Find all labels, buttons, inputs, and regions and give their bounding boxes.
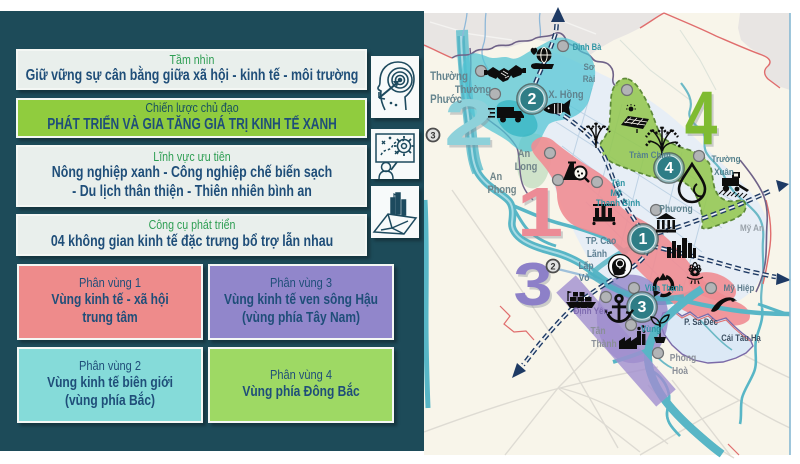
svg-text:Thành: Thành — [591, 338, 617, 349]
svg-text:Rài: Rài — [583, 73, 596, 84]
svg-text:2: 2 — [528, 91, 537, 108]
svg-text:Thường: Thường — [430, 70, 468, 83]
svg-text:Vùng: Vùng — [641, 323, 661, 334]
svg-text:Dinh Bà: Dinh Bà — [573, 41, 602, 52]
svg-text:3: 3 — [513, 251, 552, 318]
svg-text:Hoà: Hoà — [672, 365, 689, 376]
svg-text:Trường: Trường — [711, 153, 740, 164]
svg-text:1: 1 — [639, 231, 648, 248]
svg-text:Định Yên: Định Yên — [574, 305, 609, 316]
svg-text:Cái Tàu Hạ: Cái Tàu Hạ — [721, 332, 761, 343]
svg-text:Sơ: Sơ — [583, 61, 595, 72]
svg-text:Mỹ An: Mỹ An — [740, 222, 764, 233]
svg-text:Thanh Bình: Thanh Bình — [596, 197, 640, 208]
svg-text:An: An — [518, 148, 530, 160]
svg-text:Lấp: Lấp — [578, 260, 593, 271]
svg-text:Vĩnh Thạnh: Vĩnh Thạnh — [645, 283, 683, 293]
svg-text:Xuân: Xuân — [714, 166, 734, 177]
svg-text:Phong: Phong — [487, 184, 516, 196]
svg-text:Phong: Phong — [670, 352, 697, 363]
svg-text:3: 3 — [638, 299, 647, 316]
svg-text:TP. Cao: TP. Cao — [586, 235, 617, 246]
svg-text:Mỹ Hiệp: Mỹ Hiệp — [724, 282, 755, 293]
svg-text:Long: Long — [515, 161, 538, 173]
svg-text:P. Sa Đéc: P. Sa Đéc — [684, 316, 718, 327]
svg-text:3: 3 — [430, 131, 435, 141]
svg-text:2: 2 — [550, 262, 555, 272]
svg-text:Thường: Thường — [455, 84, 491, 96]
svg-text:Lãnh: Lãnh — [587, 248, 608, 259]
svg-text:Vò: Vò — [579, 272, 590, 283]
svg-text:Tràm Chim: Tràm Chim — [629, 149, 671, 160]
svg-text:An: An — [490, 171, 502, 183]
svg-text:4: 4 — [665, 160, 674, 177]
svg-text:4: 4 — [685, 77, 718, 161]
svg-text:Phương: Phương — [659, 203, 693, 214]
svg-text:X. Hồng: X. Hồng — [548, 88, 583, 101]
svg-text:Tân: Tân — [590, 325, 605, 336]
